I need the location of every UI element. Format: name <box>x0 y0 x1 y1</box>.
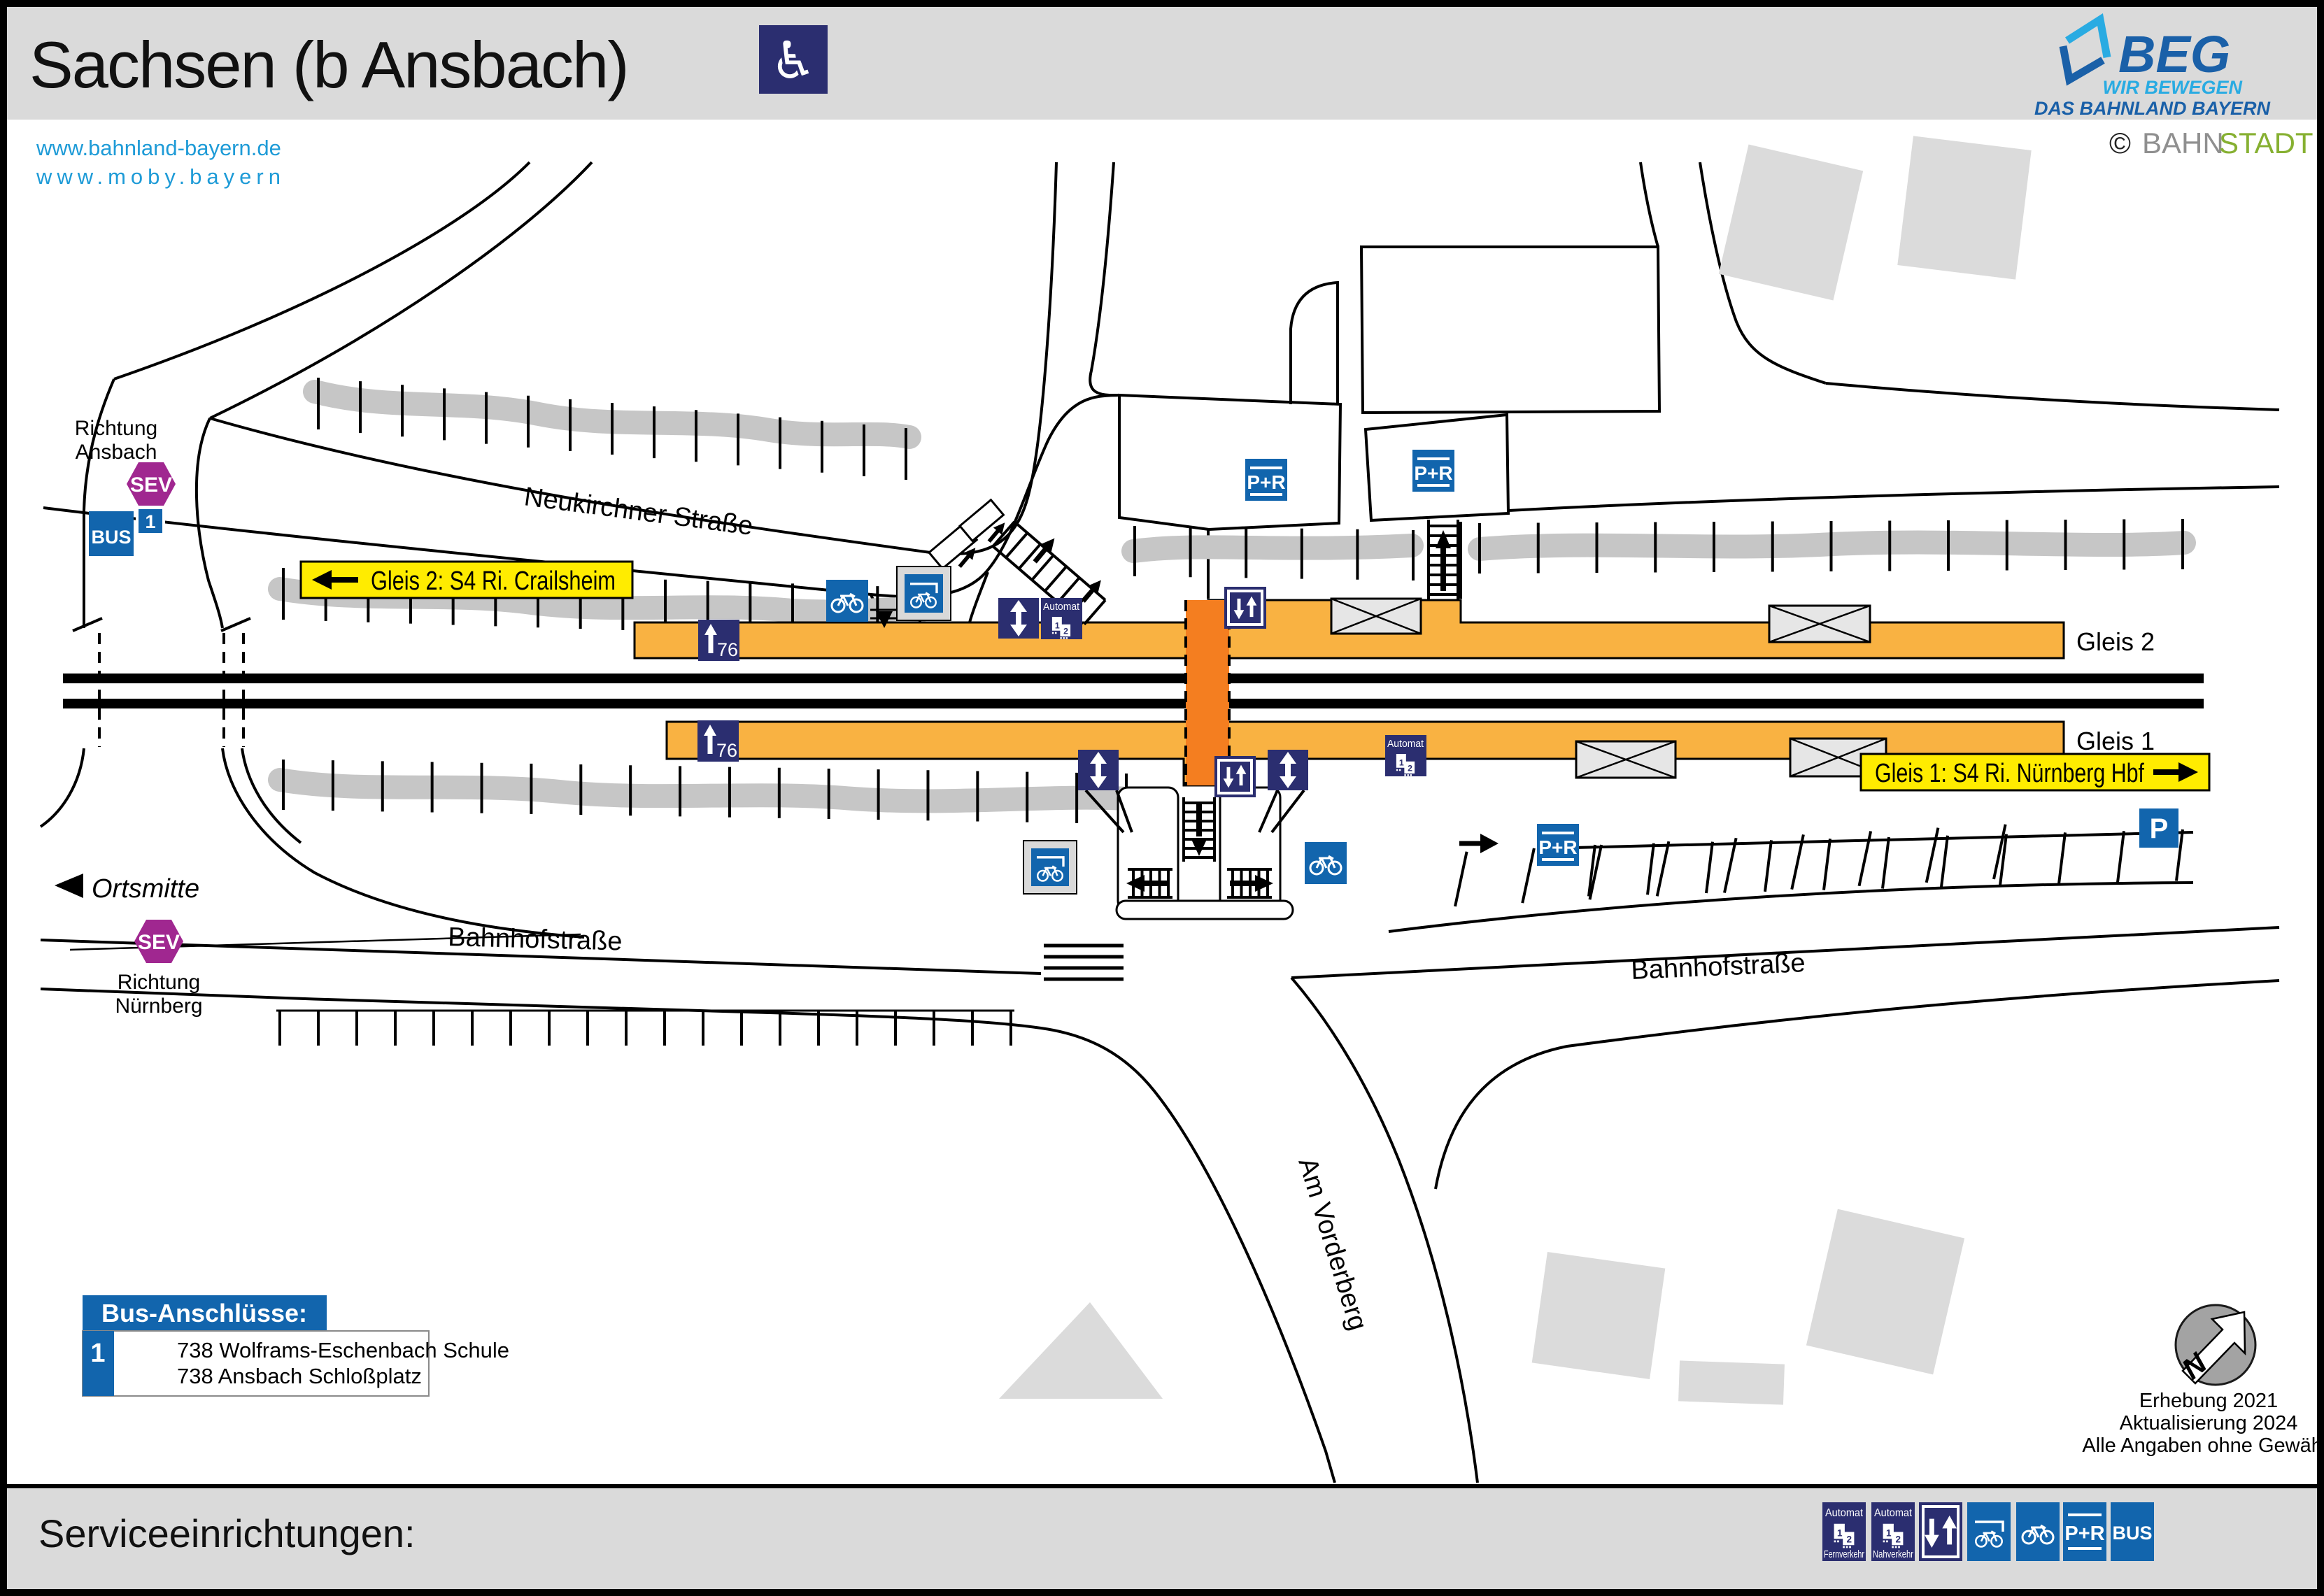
platform-height-marker: 76 <box>697 720 739 762</box>
svg-text:Automat: Automat <box>1825 1507 1863 1519</box>
bus-line-2: 738 Ansbach Schloßplatz <box>177 1364 422 1388</box>
ramp-access-icon <box>1078 750 1119 790</box>
stairs-access-icon <box>1224 587 1266 629</box>
svg-text:Ansbach: Ansbach <box>76 441 157 464</box>
svg-text:Nürnberg: Nürnberg <box>115 995 202 1018</box>
sign-gleis-2: Gleis 2: S4 Ri. Crailsheim <box>301 562 632 598</box>
legend-bike-icon <box>2016 1502 2060 1561</box>
bus-connections-title: Bus-Anschlüsse: <box>101 1299 307 1327</box>
svg-text:76: 76 <box>716 740 737 761</box>
park-and-ride-icon <box>1537 824 1579 866</box>
legend-automat-fernverkehr-icon: Automat Fernverkehr <box>1822 1502 1866 1561</box>
parking-icon: P <box>2139 808 2178 848</box>
bike-parking-icon <box>1305 842 1347 884</box>
gleis1-label: Gleis 1 <box>2076 727 2155 755</box>
svg-text:SEV: SEV <box>138 931 180 954</box>
street-label-bahnhofstrasse-west: Bahnhofstraße <box>448 922 623 957</box>
svg-text:76: 76 <box>717 639 738 660</box>
svg-text:Automat: Automat <box>1387 738 1424 750</box>
walkway <box>1117 901 1293 919</box>
stairs-access-icon <box>1214 756 1256 797</box>
richtung-ansbach-label: Richtung Ansbach <box>75 417 157 464</box>
svg-text:Richtung: Richtung <box>118 971 200 994</box>
north-compass-icon: N <box>2176 1305 2255 1385</box>
platform-height-marker: 76 <box>698 620 739 661</box>
svg-text:Ortsmitte: Ortsmitte <box>92 874 199 904</box>
station-map-page: 1 2 P+R <box>0 0 2324 1596</box>
ramp-access-icon <box>998 598 1039 639</box>
svg-text:SEV: SEV <box>130 473 172 497</box>
svg-text:P+R: P+R <box>2064 1523 2104 1545</box>
svg-text:Nahverkehr: Nahverkehr <box>1873 1548 1913 1560</box>
legend-park-and-ride-icon: P+R <box>2063 1502 2106 1561</box>
page-title: Sachsen (b Ansbach) <box>29 28 628 101</box>
station-map-svg: 1 2 P+R <box>0 0 2324 1596</box>
svg-text:Alle Angaben ohne Gewähr!: Alle Angaben ohne Gewähr! <box>2082 1434 2324 1457</box>
svg-text:Automat: Automat <box>1874 1507 1912 1519</box>
link-moby-bayern[interactable]: www.moby.bayern <box>36 164 285 189</box>
gleis2-label: Gleis 2 <box>2076 627 2155 656</box>
sign-gleis-1: Gleis 1: S4 Ri. Nürnberg Hbf <box>1861 754 2209 790</box>
svg-text:P: P <box>2150 813 2169 844</box>
svg-text:WIR BEWEGEN: WIR BEWEGEN <box>2103 77 2243 98</box>
svg-text:Gleis 2: S4 Ri. Crailsheim: Gleis 2: S4 Ri. Crailsheim <box>371 567 616 596</box>
footer-separator <box>4 1484 2320 1488</box>
park-and-ride-icon <box>1245 459 1287 501</box>
svg-text:STADT: STADT <box>2219 127 2314 159</box>
covered-bike-parking-icon <box>897 567 951 620</box>
svg-text:♿: ♿ <box>770 31 816 90</box>
svg-text:Aktualisierung 2024: Aktualisierung 2024 <box>2120 1412 2298 1434</box>
svg-text:Automat: Automat <box>1043 601 1080 613</box>
shelter <box>1769 606 1870 642</box>
bike-parking-icon <box>826 580 868 622</box>
covered-bike-parking-icon <box>1023 841 1077 894</box>
legend-title: Serviceeinrichtungen: <box>38 1511 416 1555</box>
legend-covered-bike-icon <box>1967 1502 2011 1561</box>
svg-text:BUS: BUS <box>2112 1523 2152 1544</box>
svg-text:BAHN: BAHN <box>2142 127 2224 159</box>
svg-text:BEG: BEG <box>2118 25 2230 83</box>
legend-stairs-access-icon <box>1919 1502 1962 1561</box>
ticket-machine-icon: Automat <box>1041 598 1082 639</box>
ramp-access-icon <box>1268 750 1308 790</box>
ticket-machine-icon: Automat <box>1385 735 1426 776</box>
shelter <box>1331 599 1421 634</box>
park-and-ride-icon <box>1412 450 1454 492</box>
legend-automat-nahverkehr-icon: Automat Nahverkehr <box>1871 1502 1915 1561</box>
svg-text:©: © <box>2109 127 2131 159</box>
wheelchair-icon: ♿ <box>759 25 828 94</box>
svg-text:Erhebung 2021: Erhebung 2021 <box>2139 1390 2278 1412</box>
bus-stop-number: 1 <box>90 1339 105 1368</box>
svg-text:Fernverkehr: Fernverkehr <box>1824 1548 1864 1560</box>
richtung-nuernberg-label: Richtung Nürnberg <box>115 971 202 1018</box>
svg-text:BUS: BUS <box>91 527 131 548</box>
svg-text:1: 1 <box>145 511 155 532</box>
svg-text:Gleis 1: S4 Ri. Nürnberg Hbf: Gleis 1: S4 Ri. Nürnberg Hbf <box>1875 759 2144 788</box>
link-bahnland-bayern[interactable]: www.bahnland-bayern.de <box>36 136 281 160</box>
legend-bus-icon: BUS <box>2111 1502 2154 1561</box>
bus-line-1: 738 Wolframs-Eschenbach Schule <box>177 1338 509 1362</box>
svg-text:Richtung: Richtung <box>75 417 157 440</box>
shelter <box>1576 741 1675 778</box>
svg-text:DAS BAHNLAND BAYERN: DAS BAHNLAND BAYERN <box>2034 98 2271 119</box>
